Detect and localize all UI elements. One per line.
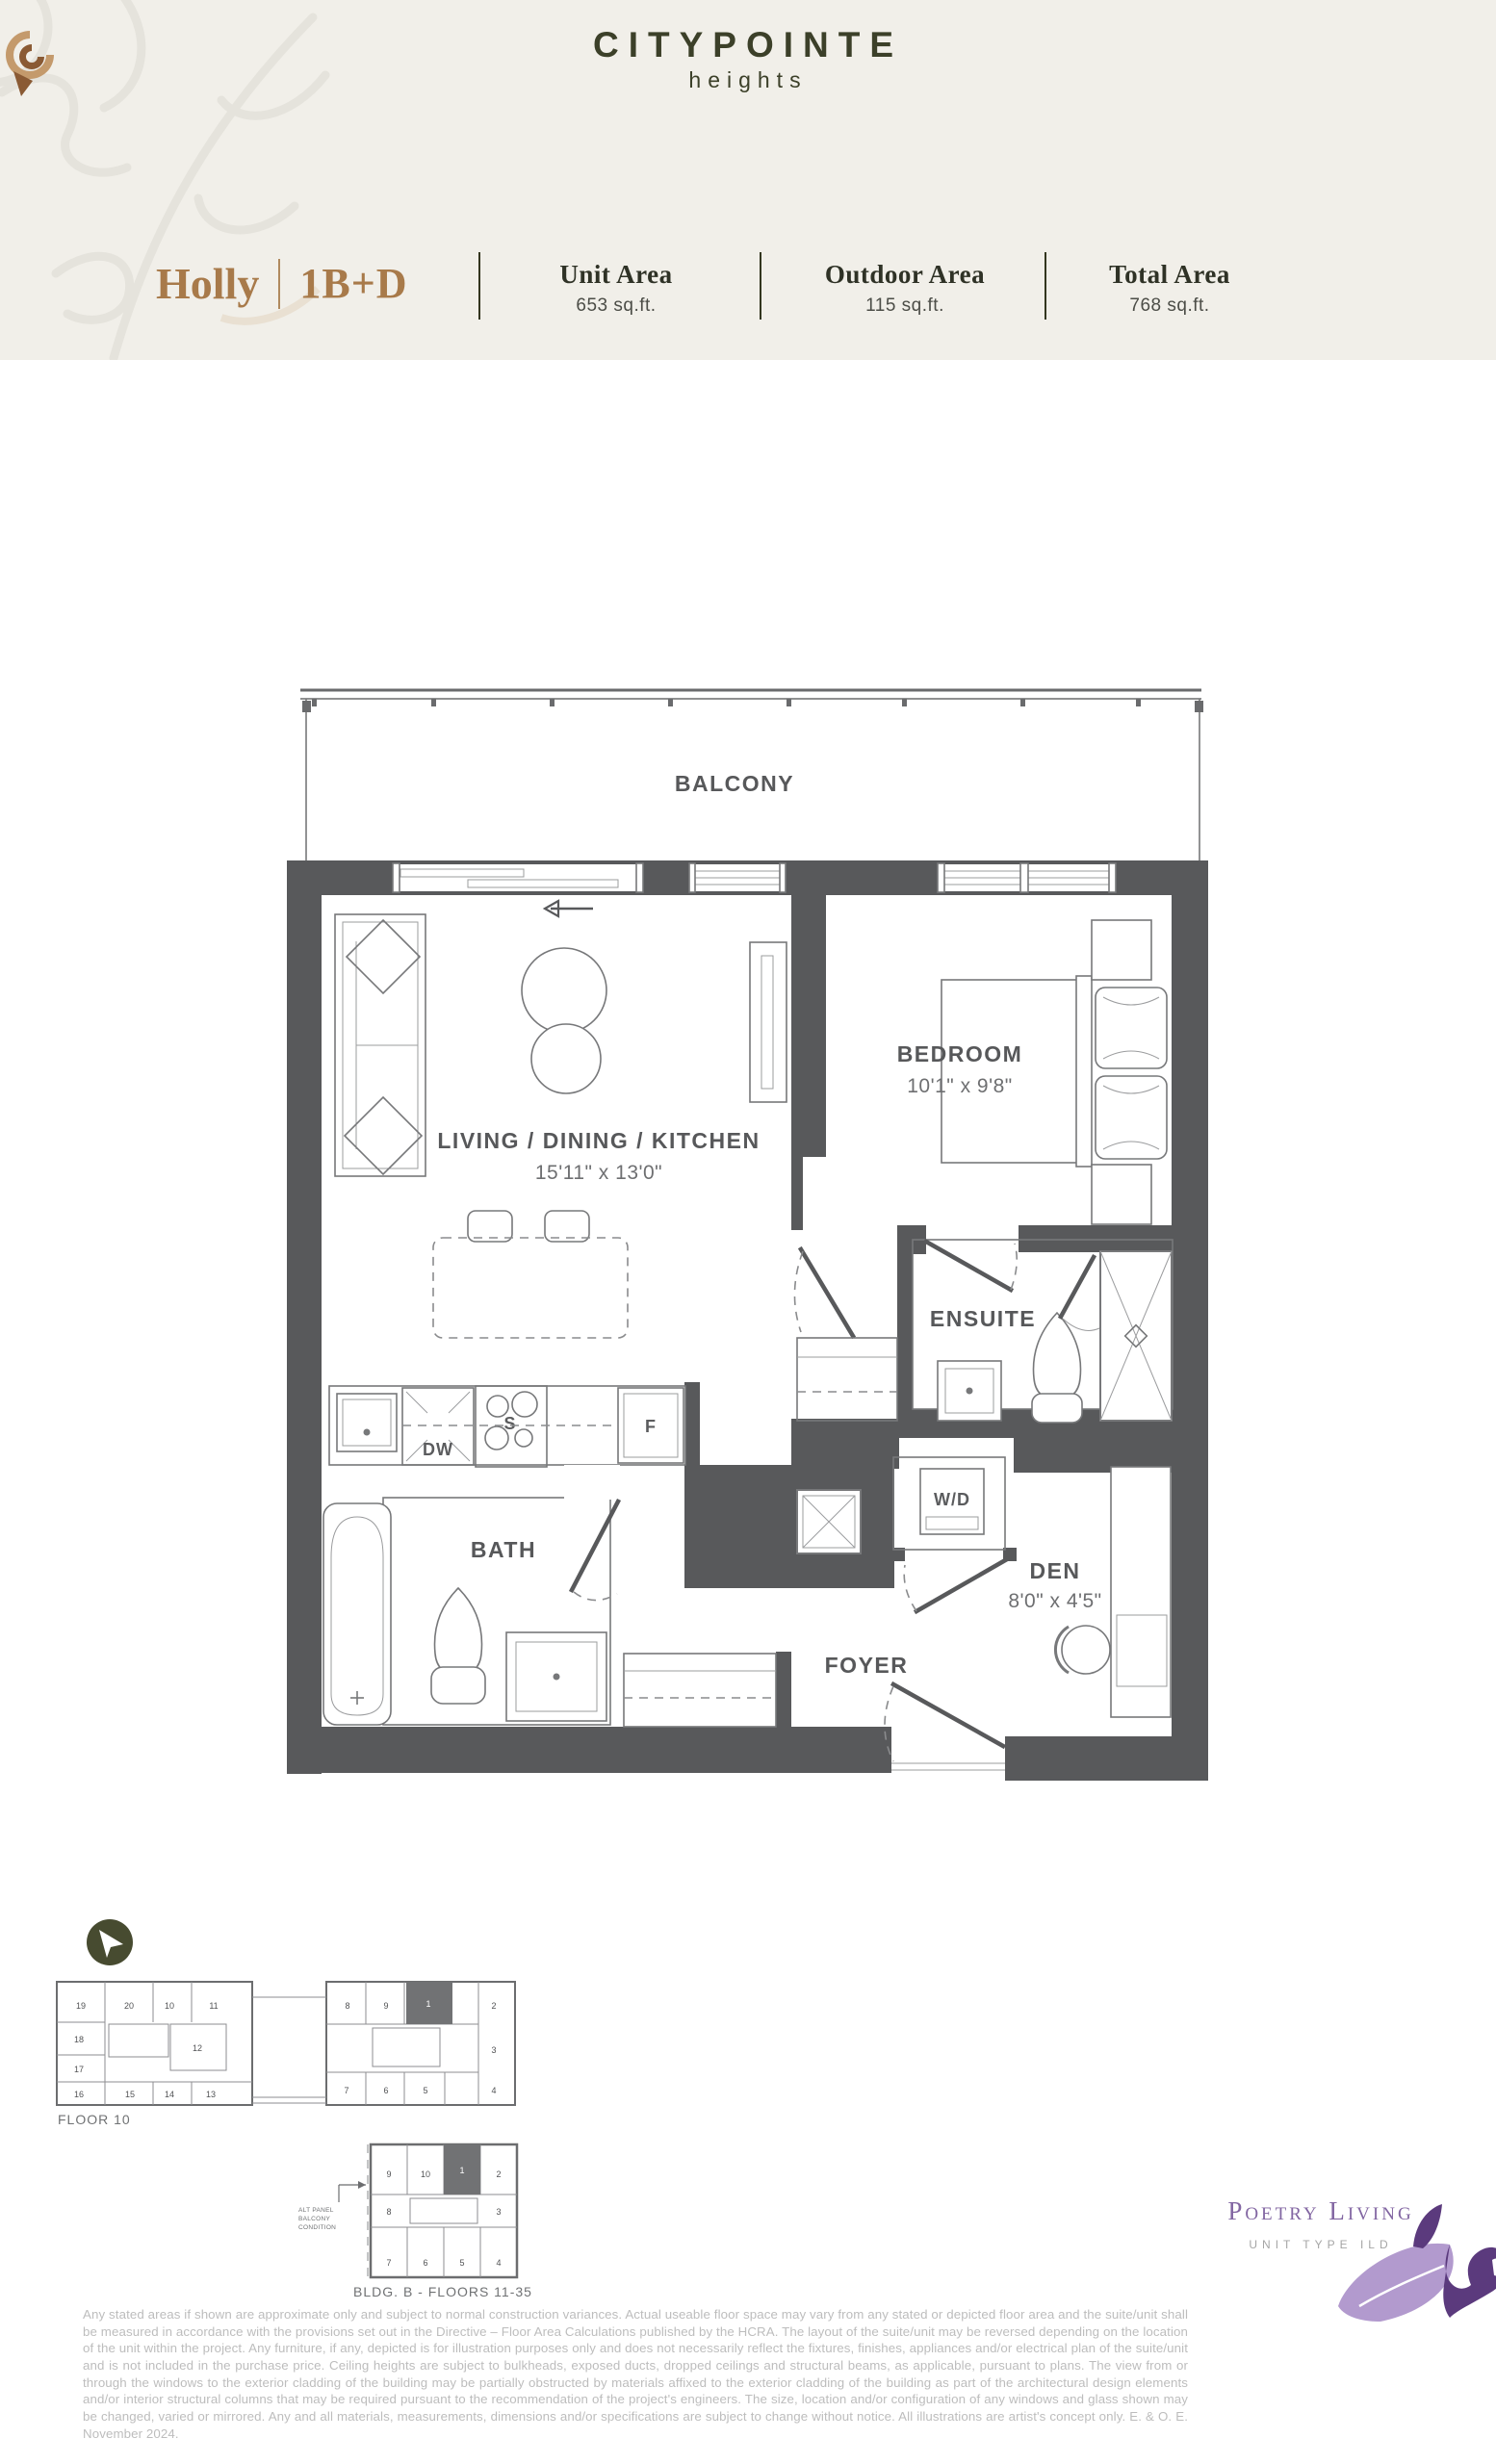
stove-label: S — [503, 1414, 516, 1433]
stat-label: Unit Area — [501, 260, 732, 290]
balcony-label: BALCONY — [675, 771, 794, 796]
unit-number: 2 — [491, 2001, 496, 2011]
keyplan-floor10-label: FLOOR 10 — [58, 2112, 131, 2127]
unit-number: 2 — [496, 2169, 501, 2179]
entry-arrow-icon — [545, 901, 593, 916]
unit-number: 6 — [423, 2258, 427, 2268]
unit-number: 19 — [76, 2001, 86, 2011]
laundry-label: W/D — [934, 1490, 970, 1509]
unit-number: 7 — [344, 2086, 348, 2095]
keyplan-bldg-b: ALT PANEL BALCONY CONDITION 9 10 1 2 8 3… — [289, 2135, 539, 2303]
stat-divider — [1045, 252, 1046, 320]
foyer-label: FOYER — [825, 1653, 909, 1678]
stat-outdoor-area: Outdoor Area 115 sq.ft. — [789, 260, 1020, 317]
unit-number: 18 — [74, 2035, 84, 2044]
tv-console-icon — [750, 942, 787, 1102]
ensuite-label: ENSUITE — [930, 1306, 1036, 1331]
living-label: LIVING / DINING / KITCHEN — [437, 1128, 760, 1153]
stat-value: 115 sq.ft. — [789, 295, 1020, 317]
disclaimer-text: Any stated areas if shown are approximat… — [83, 2306, 1188, 2442]
bedroom-label: BEDROOM — [897, 1041, 1023, 1066]
unit-type: 1B+D — [299, 259, 407, 308]
stat-value: 653 sq.ft. — [501, 295, 732, 317]
bedroom-dim: 10'1" x 9'8" — [907, 1075, 1013, 1097]
bedroom-closet — [797, 1338, 897, 1421]
unit-number: 10 — [421, 2169, 430, 2179]
unit-number-highlighted: 1 — [426, 1999, 430, 2009]
ensuite: ENSUITE — [913, 1240, 1173, 1423]
sofa-icon — [335, 914, 426, 1176]
stat-label: Total Area — [1054, 260, 1285, 290]
unit-number: 5 — [423, 2086, 427, 2095]
unit-title: Holly 1B+D — [156, 258, 408, 309]
unit-number: 6 — [383, 2086, 388, 2095]
unit-number: 9 — [386, 2169, 391, 2179]
dishwasher-label: DW — [423, 1440, 453, 1459]
unit-number-highlighted: 1 — [459, 2166, 464, 2175]
unit-number: 8 — [386, 2207, 391, 2217]
den-dim: 8'0" x 4'5" — [1008, 1590, 1101, 1612]
bedroom: BEDROOM 10'1" x 9'8" — [897, 920, 1167, 1224]
unit-number: 3 — [496, 2207, 501, 2217]
unit-number: 20 — [124, 2001, 134, 2011]
swan-quill-icon — [1321, 2204, 1496, 2348]
bath-label: BATH — [471, 1537, 536, 1562]
stat-unit-area: Unit Area 653 sq.ft. — [501, 260, 732, 317]
laundry-closet: W/D — [893, 1457, 1007, 1611]
unit-number: 4 — [491, 2086, 496, 2095]
floorplan-sheet: CITYPOINTE heights Holly 1B+D Unit Area … — [0, 0, 1496, 2464]
unit-number: 5 — [459, 2258, 464, 2268]
keyplan-note: BALCONY — [298, 2216, 331, 2222]
keyplan-bldg-b-label: BLDG. B - FLOORS 11-35 — [353, 2284, 532, 2299]
keyplan-note: CONDITION — [298, 2224, 336, 2231]
unit-number: 9 — [383, 2001, 388, 2011]
unit-number: 4 — [496, 2258, 501, 2268]
unit-number: 14 — [165, 2090, 174, 2099]
kitchen: DW S F — [329, 1386, 685, 1467]
balcony: BALCONY — [300, 690, 1203, 860]
citypointe-pin-icon — [0, 25, 60, 102]
windows — [393, 863, 1116, 892]
title-divider — [278, 259, 280, 309]
brand-name: CITYPOINTE — [0, 25, 1496, 65]
unit-number: 17 — [74, 2065, 84, 2074]
unit-name: Holly — [156, 258, 259, 309]
dining-table-icon — [433, 1211, 628, 1338]
header: CITYPOINTE heights Holly 1B+D Unit Area … — [0, 0, 1496, 360]
side-tables-icon — [522, 948, 606, 1093]
unit-number: 11 — [209, 2001, 218, 2011]
unit-number: 8 — [345, 2001, 349, 2011]
north-arrow-icon — [85, 1917, 135, 1967]
stat-value: 768 sq.ft. — [1054, 295, 1285, 317]
stat-total-area: Total Area 768 sq.ft. — [1054, 260, 1285, 317]
brand-logo: CITYPOINTE heights — [0, 25, 1496, 93]
bathroom: BATH — [323, 1465, 620, 1725]
den: DEN 8'0" x 4'5" — [1008, 1467, 1171, 1717]
unit-number: 13 — [206, 2090, 216, 2099]
unit-number: 3 — [491, 2045, 496, 2055]
unit-number: 16 — [74, 2090, 84, 2099]
keyplan-note: ALT PANEL — [298, 2207, 334, 2214]
floor-plan: BALCONY — [287, 662, 1211, 1793]
stat-divider — [760, 252, 761, 320]
brand-tagline: heights — [0, 67, 1496, 93]
shaft-icon — [797, 1490, 861, 1553]
stat-label: Outdoor Area — [789, 260, 1020, 290]
poetry-living-logo: Poetry Living UNIT TYPE ILD — [1205, 2204, 1436, 2251]
title-row: Holly 1B+D Unit Area 653 sq.ft. Outdoor … — [0, 252, 1496, 329]
unit-number: 10 — [165, 2001, 174, 2011]
unit-number: 12 — [193, 2043, 202, 2053]
living-dim: 15'11" x 13'0" — [535, 1162, 662, 1184]
keyplan-floor10: 19 20 10 11 18 12 17 16 15 14 13 8 9 1 2… — [55, 1968, 517, 2132]
stat-divider — [478, 252, 480, 320]
unit-number: 15 — [125, 2090, 135, 2099]
unit-number: 7 — [386, 2258, 391, 2268]
bedroom-door — [794, 1249, 853, 1336]
fridge-label: F — [645, 1417, 657, 1436]
den-label: DEN — [1029, 1558, 1080, 1583]
